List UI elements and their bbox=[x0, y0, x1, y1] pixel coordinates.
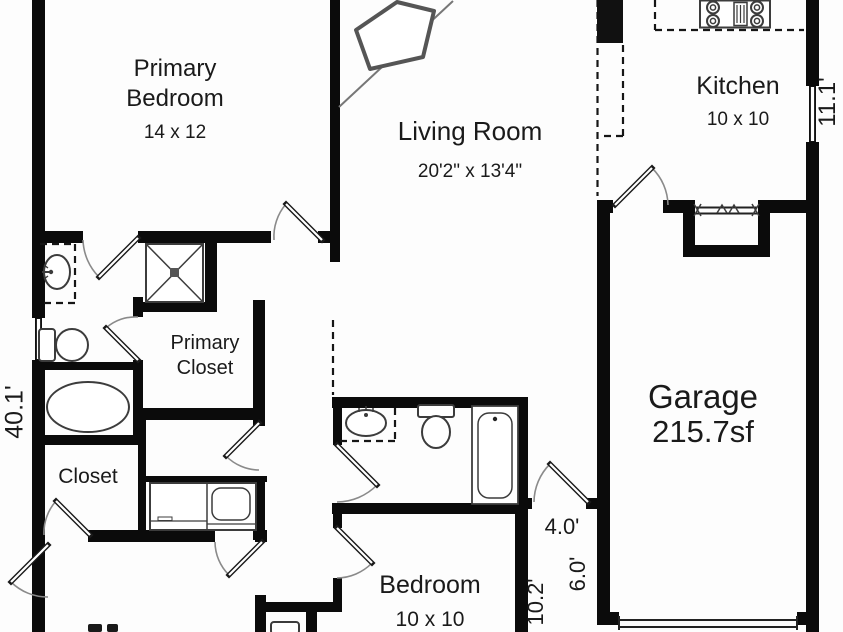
room-name: Garage bbox=[613, 379, 793, 415]
closet-door bbox=[44, 501, 90, 535]
wall-segment bbox=[32, 231, 83, 243]
cropped-marks bbox=[88, 624, 118, 632]
hall-sink-icon bbox=[346, 406, 386, 436]
room-name: Bedroom bbox=[350, 570, 510, 601]
garage-door bbox=[619, 616, 797, 630]
storage-niche-sliding-doors bbox=[694, 204, 759, 216]
fireplace bbox=[339, 1, 453, 107]
room-name: Kitchen bbox=[648, 71, 828, 102]
room-name: Closet bbox=[38, 464, 138, 490]
room-name: Living Room bbox=[370, 115, 570, 148]
washer-dryer-icon bbox=[150, 483, 256, 530]
garage-entry-door bbox=[615, 168, 668, 205]
wall-segment bbox=[330, 0, 340, 262]
primary-closet-label: Primary Closet bbox=[145, 331, 265, 381]
wall-segment bbox=[32, 0, 45, 318]
primary-sink-icon bbox=[42, 255, 70, 289]
primary-tub-icon bbox=[47, 382, 129, 432]
shower-icon bbox=[146, 244, 203, 302]
floor-plan: Primary Bedroom 14 x 12 Living Room 20'2… bbox=[0, 0, 843, 632]
primary-bedroom-label: Primary Bedroom 14 x 12 bbox=[100, 54, 250, 145]
room-dims: 10 x 10 bbox=[350, 607, 510, 632]
bedroom-label: Bedroom 10 x 10 bbox=[350, 570, 510, 632]
wall-segment bbox=[145, 476, 267, 482]
hall-toilet-icon bbox=[418, 405, 454, 448]
wall-segment bbox=[306, 610, 317, 632]
wall-segment bbox=[597, 205, 610, 625]
wall-segment bbox=[205, 235, 217, 312]
wall-segment bbox=[333, 397, 342, 445]
kitchen-counter-dashed bbox=[599, 45, 623, 138]
wall-segment bbox=[333, 503, 342, 528]
wall-segment bbox=[140, 408, 263, 420]
hall-door bbox=[215, 542, 262, 575]
dimension-kitchen-right: 11.1' bbox=[814, 77, 842, 127]
closet-label: Closet bbox=[38, 464, 138, 490]
room-dims: 10 x 10 bbox=[648, 108, 828, 132]
wall-segment bbox=[143, 302, 217, 312]
water-closet-door bbox=[106, 317, 138, 360]
wall-segment bbox=[138, 420, 146, 540]
wall-segment bbox=[261, 602, 337, 612]
hall-bathroom-door bbox=[337, 445, 377, 502]
hall-tub-icon bbox=[472, 406, 518, 504]
laundry-door bbox=[226, 423, 259, 470]
primary-bedroom-door bbox=[83, 238, 138, 277]
wall-segment bbox=[88, 530, 215, 542]
wall-segment bbox=[32, 530, 44, 542]
refrigerator bbox=[597, 0, 623, 43]
wall-segment bbox=[806, 142, 819, 632]
room-name: Primary Closet bbox=[145, 331, 265, 381]
wall-segment bbox=[663, 200, 683, 213]
wall-segment bbox=[32, 360, 45, 632]
wall-segment bbox=[597, 612, 619, 625]
wall-segment bbox=[138, 231, 271, 243]
room-area: 215.7sf bbox=[613, 415, 793, 448]
dimension-nook-depth: 6.0' bbox=[565, 557, 591, 592]
wall-segment bbox=[133, 297, 143, 317]
room-dims: 14 x 12 bbox=[100, 121, 250, 145]
room-dims: 20'2" x 13'4" bbox=[370, 160, 570, 184]
kitchen-label: Kitchen 10 x 10 bbox=[648, 71, 828, 132]
living-room-label: Living Room 20'2" x 13'4" bbox=[370, 115, 570, 183]
garage-label: Garage 215.7sf bbox=[613, 379, 793, 448]
wall-segment bbox=[255, 595, 266, 632]
side-exit-door bbox=[534, 464, 588, 502]
dimension-side-depth: 10.2' bbox=[523, 578, 549, 625]
dimension-left-height: 40.1' bbox=[1, 385, 30, 438]
wall-segment bbox=[683, 245, 770, 257]
wall-segment bbox=[38, 362, 135, 370]
wall-segment bbox=[797, 612, 819, 625]
wall-segment bbox=[32, 435, 145, 445]
cropped-toilet-icon bbox=[271, 622, 299, 632]
primary-toilet-icon bbox=[39, 329, 88, 361]
stove-icon bbox=[700, 1, 770, 28]
primary-suite-entry-door bbox=[274, 204, 322, 240]
dimension-nook-width: 4.0' bbox=[522, 513, 602, 541]
room-name: Primary Bedroom bbox=[100, 54, 250, 114]
